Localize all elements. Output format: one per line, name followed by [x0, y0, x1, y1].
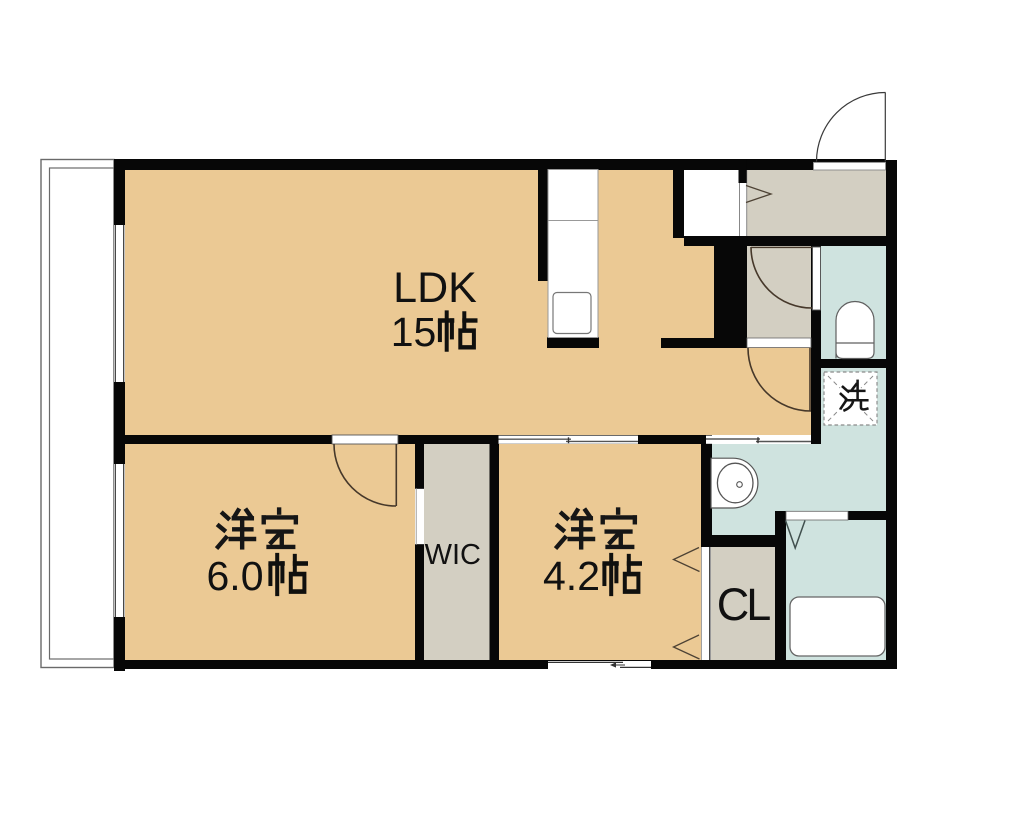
svg-text:CL: CL [717, 579, 770, 630]
svg-text:4.2: 4.2 [543, 553, 600, 599]
svg-text:6.0: 6.0 [207, 553, 264, 599]
svg-text:WIC: WIC [425, 539, 481, 571]
svg-text:15: 15 [391, 309, 437, 355]
svg-text:LDK: LDK [393, 264, 477, 312]
